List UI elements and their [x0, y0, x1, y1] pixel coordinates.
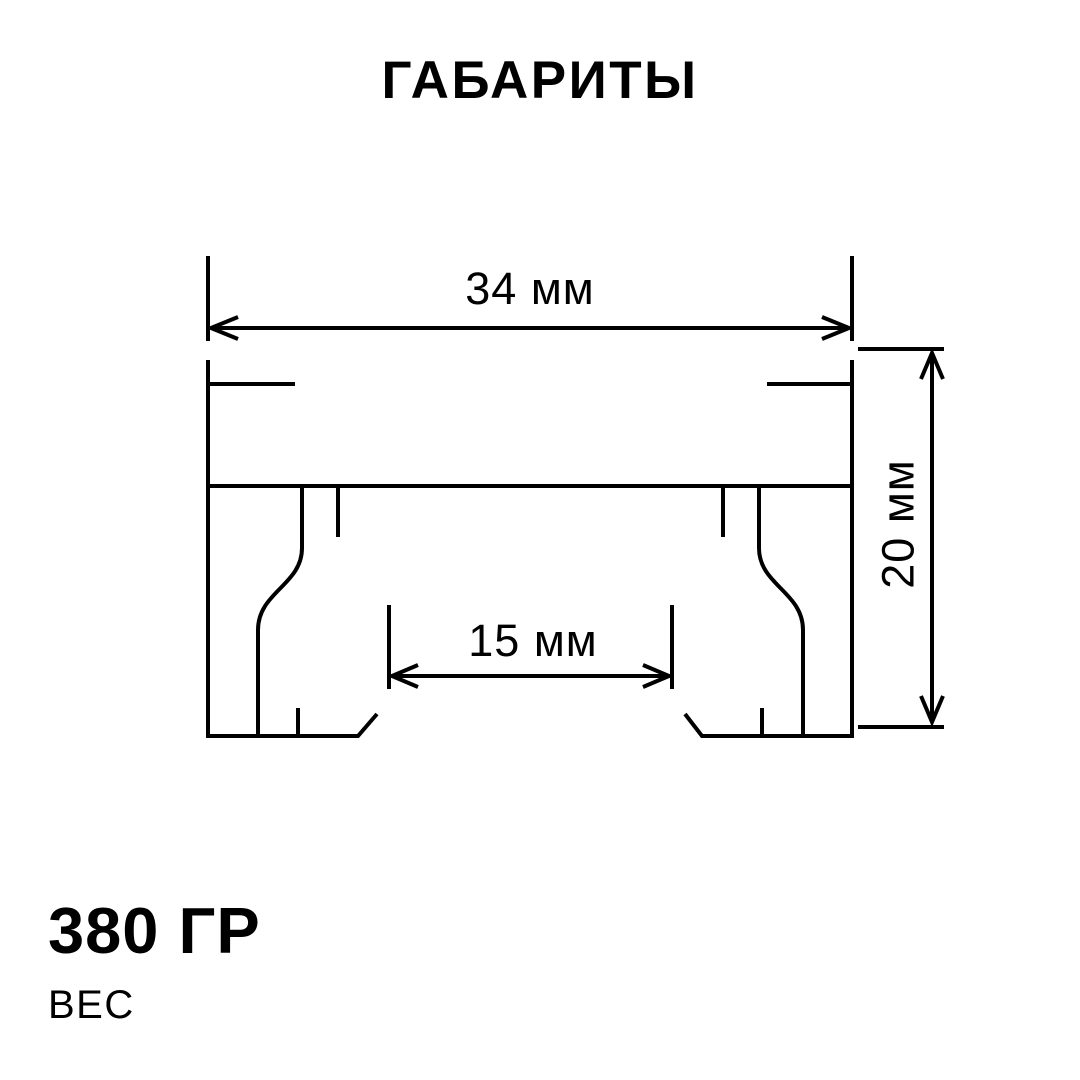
- profile-right-inner-leg: [759, 486, 803, 736]
- weight-value: 380 ГР: [48, 898, 261, 963]
- dim-height-label: 20 мм: [876, 459, 921, 588]
- profile-outline: [206, 360, 854, 736]
- dim-inner-label: 15 мм: [468, 618, 597, 663]
- dim-width-label: 34 мм: [465, 266, 594, 311]
- weight-caption: ВЕС: [48, 985, 261, 1025]
- weight-block: 380 ГР ВЕС: [48, 898, 261, 1025]
- profile-left-wall-and-foot: [208, 360, 377, 736]
- infographic-canvas: ГАБАРИТЫ: [0, 0, 1080, 1080]
- profile-left-inner-leg: [258, 486, 302, 736]
- profile-right-wall-and-foot: [685, 360, 852, 736]
